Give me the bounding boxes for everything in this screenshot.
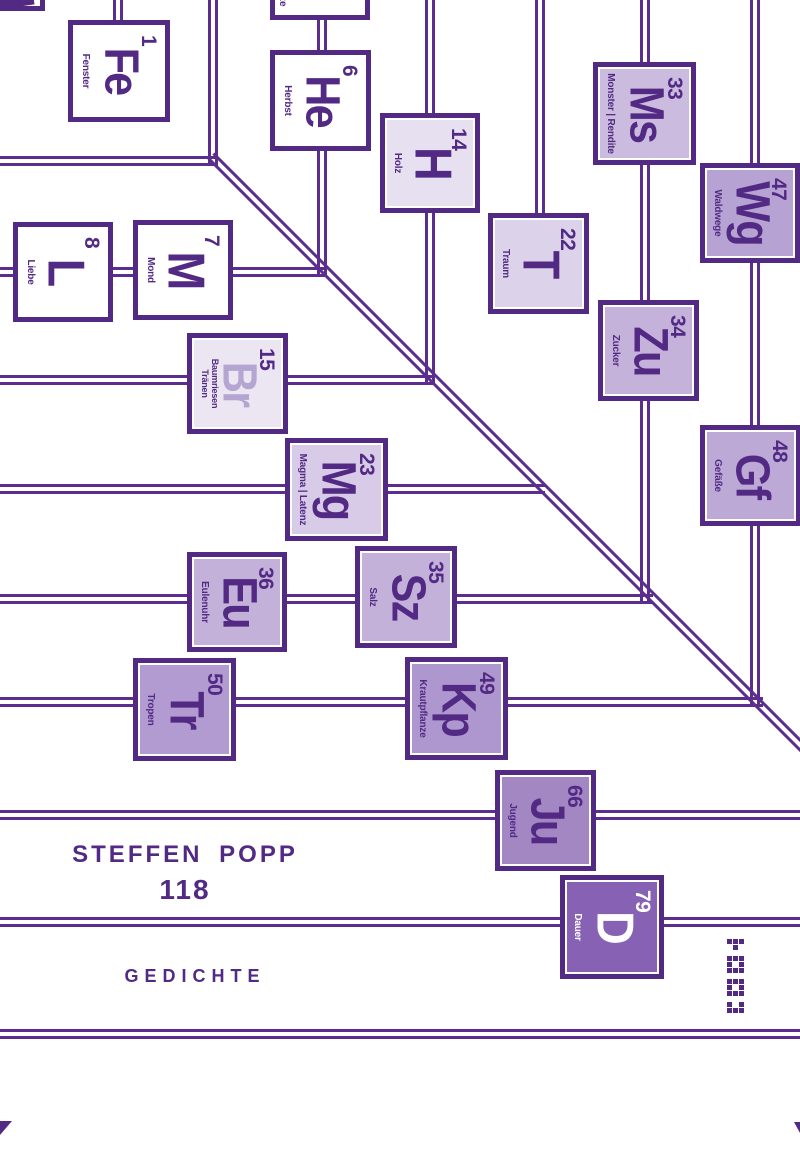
element-label: Holz — [392, 123, 403, 203]
logo-pixel — [727, 968, 732, 973]
element-label: Salz — [367, 556, 378, 638]
element-label: Dauer — [572, 885, 583, 969]
element-tile-fill: 1FeFenster — [75, 27, 163, 115]
element-tile-he: 6HeHerbst — [270, 50, 371, 151]
element-symbol: T — [511, 250, 571, 277]
element-symbol: Ms — [619, 85, 674, 141]
logo-pixel — [733, 985, 738, 990]
element-tile-content: 33MsMonster | Rendite — [602, 71, 687, 156]
element-tile-gf: 48GfGefäße — [700, 425, 800, 526]
logo-pixel — [727, 945, 732, 950]
element-tile-fe: 1FeFenster — [68, 20, 170, 122]
logo-pixel — [739, 1008, 744, 1013]
element-tile-content: 14HHolz — [389, 122, 471, 204]
logo-pixel — [739, 985, 744, 990]
logo-row — [727, 945, 744, 950]
element-symbol: He — [295, 75, 350, 127]
element-symbol: Tr — [159, 691, 214, 728]
element-label: Monster | Rendite — [605, 72, 616, 155]
element-number: 8 — [79, 237, 103, 248]
element-tile-l: 8LLiebe — [13, 222, 113, 322]
element-tile-content: 47WgWaldwege — [709, 172, 791, 254]
element-label: Gefäße — [712, 435, 723, 516]
book-title-number: 118 — [40, 874, 330, 906]
element-label: Fenster — [80, 30, 91, 112]
element-tile-tr: 50TrTropen — [133, 658, 236, 761]
element-tile-fill: 48GfGefäße — [707, 432, 794, 519]
grid-vline — [208, 0, 218, 166]
element-label: Mond — [145, 230, 156, 310]
grid-vline — [750, 0, 760, 165]
element-tile-wg: 47WgWaldwege — [700, 163, 800, 263]
logo-pixel — [739, 979, 744, 984]
element-tile-br: 15BrBaumriesenTränen — [187, 333, 288, 434]
element-label: Magma | Latenz — [297, 448, 308, 531]
grid-vline — [750, 524, 760, 707]
grid-hline — [0, 484, 545, 494]
logo-pixel — [727, 1008, 732, 1013]
element-tile-zu: 34ZuZucker — [598, 300, 699, 401]
logo-pixel — [727, 939, 732, 944]
grid-vline — [640, 0, 650, 64]
publisher-logo — [727, 939, 744, 1014]
element-tile-sz: 35SzSalz — [355, 546, 457, 648]
element-tile-fill: 33MsMonster | Rendite — [600, 69, 689, 158]
logo-row — [727, 985, 744, 990]
grid-hline — [0, 917, 800, 927]
logo-pixel — [739, 945, 744, 950]
grid-hline — [0, 1029, 800, 1039]
element-tile-content: 49KpKrautpflanze — [414, 666, 499, 751]
element-tile-t: 22TTraum — [488, 213, 589, 314]
grid-hline — [0, 697, 763, 707]
element-label: Krautpflanze — [417, 667, 428, 750]
element-tile-fill: 79DDauer — [567, 882, 657, 972]
logo-pixel — [733, 1008, 738, 1013]
element-tile-content: 15BrBaumriesenTränen — [196, 342, 279, 425]
element-number: 22 — [555, 228, 579, 250]
logo-row — [727, 956, 744, 961]
element-tile-content: 7MMond — [142, 229, 224, 311]
element-label: Herbst — [282, 60, 293, 141]
logo-pixel — [739, 991, 744, 996]
logo-row — [727, 1008, 744, 1013]
element-tile-fill: 7MMond — [140, 227, 226, 313]
element-label: Waldwege — [712, 173, 723, 253]
element-symbol: Mg — [311, 460, 366, 519]
element-symbol: Sz — [381, 574, 436, 621]
logo-pixel — [739, 956, 744, 961]
logo-pixel — [727, 956, 732, 961]
element-tile-ms: 33MsMonster | Rendite — [593, 62, 696, 165]
element-symbol: L — [35, 259, 95, 286]
logo-pixel — [727, 962, 732, 967]
logo-pixel — [733, 1002, 738, 1007]
element-tile-content: 48GfGefäße — [709, 434, 792, 517]
logo-row — [727, 1002, 744, 1007]
grid-vline — [113, 0, 123, 22]
element-tile-fill: 47WgWaldwege — [707, 170, 793, 256]
element-tile-kp: 49KpKrautpflanze — [405, 657, 508, 760]
element-tile-content: 34ZuZucker — [607, 309, 690, 392]
logo-pixel — [733, 968, 738, 973]
logo-row — [727, 939, 744, 944]
grid-vline — [425, 211, 435, 385]
logo-pixel — [727, 1002, 732, 1007]
element-symbol: H — [402, 147, 462, 179]
grid-vline — [640, 160, 650, 302]
element-tile-fill: 8LLiebe — [20, 229, 106, 315]
logo-pixel — [733, 962, 738, 967]
element-symbol: D — [584, 911, 644, 943]
logo-pixel — [727, 985, 732, 990]
author-name: STEFFEN POPP — [40, 841, 330, 869]
element-symbol: Br — [212, 361, 267, 405]
element-label: BaumriesenTränen — [199, 343, 219, 424]
grid-hline — [0, 810, 800, 820]
element-label: Traum — [500, 223, 511, 304]
element-symbol: Eu — [212, 576, 267, 628]
element-number: 7 — [199, 235, 223, 246]
logo-pixel — [733, 979, 738, 984]
element-symbol: Fe — [94, 48, 149, 95]
element-tile-fill: 49KpKrautpflanze — [412, 664, 501, 753]
logo-pixel — [733, 956, 738, 961]
element-tile-content: 36EuEulenuhr — [196, 561, 278, 643]
element-tile-content: 79DDauer — [569, 884, 655, 970]
element-tile-content: 66JuJugend — [504, 779, 587, 862]
element-tile-fill: 34ZuZucker — [605, 307, 692, 394]
element-tile-fill: 15BrBaumriesenTränen — [194, 340, 281, 427]
logo-pixel — [727, 991, 732, 996]
element-tile-fill: 23MgMagma | Latenz — [292, 445, 381, 534]
logo-pixel — [727, 979, 732, 984]
element-symbol: Zu — [623, 326, 678, 375]
element-label: Tropen — [145, 668, 156, 751]
element-tile-content: 23MgMagma | Latenz — [294, 447, 379, 532]
element-label: Liebe — [25, 232, 36, 312]
logo-pixel — [733, 939, 738, 944]
grid-vline — [317, 18, 327, 52]
element-tile-fill: 22TTraum — [495, 220, 582, 307]
logo-pixel — [739, 939, 744, 944]
element-tile-fill: 50TrTropen — [140, 665, 229, 754]
grid-vline — [535, 0, 545, 215]
element-tile-content: 50TrTropen — [142, 667, 227, 752]
logo-row — [727, 968, 744, 973]
element-number: 79 — [630, 890, 654, 912]
corner-chevron-bottom-right — [794, 1122, 800, 1133]
element-tile-m: 7MMond — [133, 220, 233, 320]
element-label: Zucker — [610, 310, 621, 391]
element-tile-ju: 66JuJugend — [495, 770, 596, 871]
book-cover: 1FeFenster6HeHerbst14HHolz33MsMonster | … — [0, 0, 800, 1151]
element-symbol: Wg — [725, 181, 780, 245]
element-tile-content: 35SzSalz — [364, 555, 448, 639]
element-label: Eulenuhr — [199, 562, 210, 642]
corner-chevron-bottom-left — [0, 1121, 12, 1135]
element-tile-fill: 14HHolz — [387, 120, 473, 206]
logo-row — [727, 991, 744, 996]
logo-row — [727, 962, 744, 967]
element-symbol: Ju — [520, 797, 575, 844]
element-symbol: M — [155, 251, 215, 288]
element-symbol: Kp — [431, 682, 486, 736]
element-tile-fill: 35SzSalz — [362, 553, 450, 641]
logo-pixel — [739, 1002, 744, 1007]
logo-pixel — [733, 945, 738, 950]
element-tile-fill: 66JuJugend — [502, 777, 589, 864]
grid-vline — [425, 0, 435, 115]
subtitle-gedichte: GEDICHTE — [55, 966, 335, 987]
element-symbol: Gf — [725, 453, 780, 497]
element-tile-eu: 36EuEulenuhr — [187, 552, 287, 652]
cropped-tile-label: ze — [277, 0, 288, 7]
logo-pixel — [739, 962, 744, 967]
grid-vline — [750, 261, 760, 427]
logo-row — [727, 979, 744, 984]
logo-pixel — [739, 968, 744, 973]
grid-hline — [0, 156, 218, 166]
element-tile-fill: 6HeHerbst — [277, 57, 364, 144]
element-tile-d: 79DDauer — [560, 875, 664, 979]
grid-hline — [0, 594, 653, 604]
element-tile-h: 14HHolz — [380, 113, 480, 213]
element-tile-content: 22TTraum — [497, 222, 580, 305]
element-label: Jugend — [507, 780, 518, 861]
element-tile-content: 6HeHerbst — [279, 59, 362, 142]
element-tile-fill: 36EuEulenuhr — [194, 559, 280, 645]
element-number: 1 — [136, 35, 160, 46]
logo-pixel — [733, 991, 738, 996]
element-tile-content: 8LLiebe — [22, 231, 104, 313]
element-tile-content: 1FeFenster — [77, 29, 161, 113]
element-tile-mg: 23MgMagma | Latenz — [285, 438, 388, 541]
grid-vline — [640, 399, 650, 604]
